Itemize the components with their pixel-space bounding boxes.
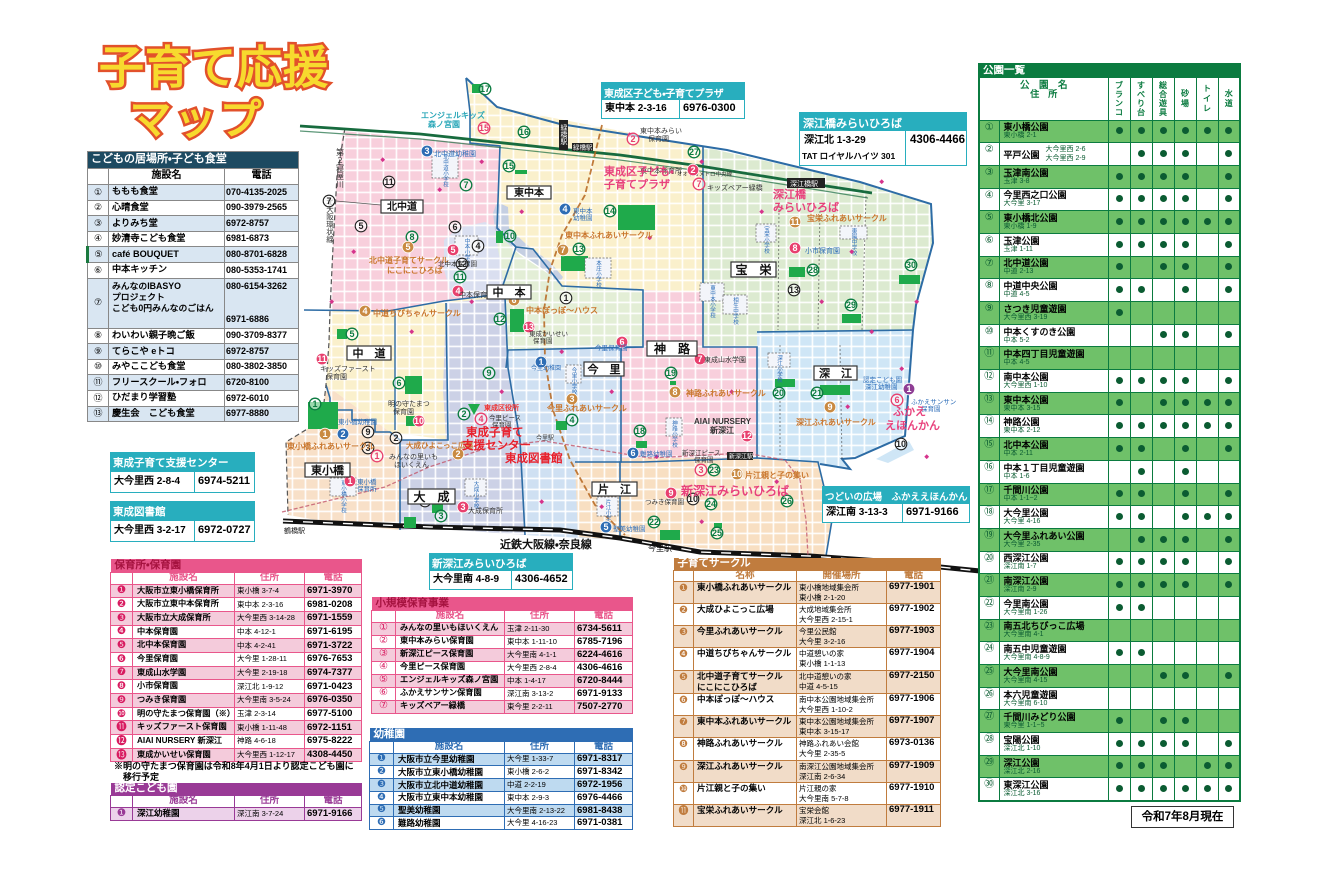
svg-text:東成図書館: 東成図書館 bbox=[505, 451, 563, 465]
svg-text:東成山水学園: 東成山水学園 bbox=[704, 355, 746, 364]
svg-text:28: 28 bbox=[808, 265, 818, 275]
svg-text:東成かいせい: 東成かいせい bbox=[529, 329, 568, 338]
svg-text:北中道: 北中道 bbox=[387, 200, 418, 213]
svg-text:東成区役所: 東成区役所 bbox=[484, 403, 519, 412]
svg-text:東成子育て: 東成子育て bbox=[466, 425, 524, 439]
svg-text:保育園: 保育園 bbox=[648, 134, 669, 143]
svg-text:大 成: 大 成 bbox=[413, 489, 449, 504]
svg-text:1: 1 bbox=[374, 451, 379, 461]
svg-text:6: 6 bbox=[452, 222, 457, 232]
svg-text:10: 10 bbox=[505, 231, 515, 241]
svg-text:片江親と子の集い: 片江親と子の集い bbox=[745, 470, 809, 480]
svg-text:みんなの里いも: みんなの里いも bbox=[389, 453, 438, 461]
svg-text:片 江: 片 江 bbox=[598, 482, 631, 496]
svg-text:22: 22 bbox=[649, 517, 659, 527]
svg-text:6: 6 bbox=[894, 395, 899, 405]
svg-text:13: 13 bbox=[789, 285, 799, 295]
svg-text:宝 栄: 宝 栄 bbox=[735, 262, 772, 277]
svg-text:東成区子ども・: 東成区子ども・ bbox=[604, 164, 674, 178]
svg-text:29: 29 bbox=[846, 300, 856, 310]
svg-text:4: 4 bbox=[475, 241, 480, 251]
svg-text:中 道: 中 道 bbox=[353, 346, 386, 360]
svg-text:第２寝屋川: 第２寝屋川 bbox=[336, 147, 345, 188]
svg-text:相生中学校: 相生中学校 bbox=[732, 296, 739, 326]
svg-text:11: 11 bbox=[384, 177, 394, 187]
svg-text:東小橋: 東小橋 bbox=[357, 477, 377, 486]
svg-text:7: 7 bbox=[560, 245, 565, 255]
svg-text:8: 8 bbox=[672, 387, 677, 397]
svg-text:30: 30 bbox=[906, 260, 916, 270]
svg-text:4: 4 bbox=[562, 204, 567, 214]
svg-text:東中本: 東中本 bbox=[573, 206, 593, 215]
svg-text:みらいひろば: みらいひろば bbox=[773, 200, 839, 214]
svg-text:今里駅: 今里駅 bbox=[536, 434, 554, 442]
svg-text:今里幼稚園: 今里幼稚園 bbox=[531, 364, 561, 372]
svg-text:大成小学校: 大成小学校 bbox=[473, 480, 480, 510]
svg-text:宝栄小学校: 宝栄小学校 bbox=[763, 225, 770, 255]
svg-text:2: 2 bbox=[393, 433, 398, 443]
svg-text:5: 5 bbox=[405, 242, 410, 252]
svg-text:7: 7 bbox=[697, 354, 702, 364]
svg-text:緑橋駅: 緑橋駅 bbox=[560, 123, 568, 146]
svg-text:4: 4 bbox=[362, 306, 367, 316]
svg-text:子育てプラザ: 子育てプラザ bbox=[604, 177, 670, 191]
svg-text:今 里: 今 里 bbox=[588, 362, 621, 376]
svg-text:8: 8 bbox=[409, 232, 414, 242]
svg-text:東小橋: 東小橋 bbox=[311, 463, 345, 477]
svg-text:保育園: 保育園 bbox=[694, 455, 714, 464]
svg-text:東中本ふれあいサークル: 東中本ふれあいサークル bbox=[565, 230, 653, 240]
svg-text:新深江ピース: 新深江ピース bbox=[682, 448, 721, 457]
svg-text:4: 4 bbox=[478, 414, 483, 424]
svg-text:深江橋: 深江橋 bbox=[773, 187, 807, 201]
svg-text:11: 11 bbox=[790, 217, 800, 227]
svg-text:今里駅: 今里駅 bbox=[648, 543, 672, 553]
svg-text:キッズファースト: キッズファースト bbox=[320, 364, 376, 373]
svg-text:2: 2 bbox=[461, 409, 466, 419]
svg-text:9: 9 bbox=[365, 427, 370, 437]
svg-text:9: 9 bbox=[486, 368, 491, 378]
svg-text:オオサカメトロ中央線: オオサカメトロ中央線 bbox=[677, 170, 733, 178]
svg-text:近鉄大阪線・奈良線: 近鉄大阪線・奈良線 bbox=[500, 537, 593, 551]
svg-text:キッズベアー緑橋: キッズベアー緑橋 bbox=[707, 183, 763, 192]
svg-text:3: 3 bbox=[569, 394, 574, 404]
svg-text:11: 11 bbox=[455, 272, 465, 282]
svg-text:15: 15 bbox=[479, 123, 489, 133]
svg-text:1: 1 bbox=[322, 429, 327, 439]
svg-text:ふかえ: ふかえ bbox=[893, 405, 926, 418]
svg-text:1: 1 bbox=[312, 399, 317, 409]
svg-text:中道ちびちゃんサークル: 中道ちびちゃんサークル bbox=[373, 308, 461, 318]
svg-text:にこにこひろば: にこにこひろば bbox=[387, 265, 443, 275]
svg-text:2: 2 bbox=[455, 449, 460, 459]
svg-text:1: 1 bbox=[906, 384, 911, 394]
svg-text:新深江駅: 新深江駅 bbox=[729, 453, 753, 461]
svg-text:25: 25 bbox=[712, 528, 722, 538]
svg-text:21: 21 bbox=[812, 388, 822, 398]
svg-text:森ノ宮園: 森ノ宮園 bbox=[428, 119, 460, 129]
svg-text:16: 16 bbox=[519, 127, 529, 137]
svg-text:東小橋幼稚園: 東小橋幼稚園 bbox=[338, 417, 377, 426]
svg-text:3: 3 bbox=[698, 465, 703, 475]
svg-text:幼稚園: 幼稚園 bbox=[573, 213, 593, 222]
svg-text:9: 9 bbox=[668, 488, 673, 498]
svg-text:保育園: 保育園 bbox=[326, 372, 347, 381]
svg-text:12: 12 bbox=[742, 431, 752, 441]
svg-text:東中本: 東中本 bbox=[514, 186, 545, 199]
svg-text:27: 27 bbox=[689, 147, 699, 157]
svg-text:5: 5 bbox=[349, 329, 354, 339]
svg-text:7: 7 bbox=[696, 179, 701, 189]
svg-text:23: 23 bbox=[709, 465, 719, 475]
svg-text:北中道小学校: 北中道小学校 bbox=[442, 153, 449, 189]
svg-text:子育て応援: 子育て応援 bbox=[99, 42, 329, 93]
svg-text:支援センター: 支援センター bbox=[461, 438, 531, 452]
svg-text:6: 6 bbox=[396, 378, 401, 388]
svg-text:保育園: 保育園 bbox=[533, 336, 553, 345]
svg-text:明の守たまつ: 明の守たまつ bbox=[388, 399, 430, 408]
svg-text:北中道子育てサークル: 北中道子育てサークル bbox=[369, 255, 449, 265]
svg-text:2: 2 bbox=[690, 165, 695, 175]
svg-text:4: 4 bbox=[569, 415, 574, 425]
svg-text:10: 10 bbox=[732, 469, 742, 479]
svg-text:今里保育園: 今里保育園 bbox=[595, 343, 628, 352]
svg-text:神路ふれあいサークル: 神路ふれあいサークル bbox=[685, 388, 766, 398]
svg-text:新深江みらいひろば: 新深江みらいひろば bbox=[680, 483, 789, 498]
svg-text:1: 1 bbox=[563, 293, 568, 303]
svg-text:5: 5 bbox=[450, 245, 455, 255]
svg-text:東中本みらい: 東中本みらい bbox=[640, 126, 682, 135]
svg-text:深江小学校: 深江小学校 bbox=[776, 354, 783, 384]
svg-text:18: 18 bbox=[635, 426, 645, 436]
svg-text:7: 7 bbox=[463, 180, 468, 190]
svg-text:新深江: 新深江 bbox=[709, 425, 734, 435]
svg-text:難路幼稚園: 難路幼稚園 bbox=[640, 449, 673, 458]
svg-text:つみき保育園: つみき保育園 bbox=[645, 497, 684, 506]
svg-text:保育園: 保育園 bbox=[393, 407, 414, 416]
svg-text:緑橋駅: 緑橋駅 bbox=[573, 143, 593, 152]
svg-text:宝栄ふれあいサークル: 宝栄ふれあいサークル bbox=[807, 213, 887, 223]
svg-text:7: 7 bbox=[326, 196, 331, 206]
svg-text:東小橋ふれあいサークル: 東小橋ふれあいサークル bbox=[287, 441, 375, 451]
svg-text:深江幼稚園: 深江幼稚園 bbox=[865, 382, 898, 391]
svg-text:2: 2 bbox=[340, 429, 345, 439]
svg-text:24: 24 bbox=[706, 499, 716, 509]
svg-text:今里小学校: 今里小学校 bbox=[571, 366, 578, 396]
svg-text:5: 5 bbox=[603, 522, 608, 532]
svg-text:2: 2 bbox=[630, 134, 635, 144]
svg-text:神 路: 神 路 bbox=[653, 341, 691, 356]
svg-text:中本ぽっぽ～ハウス: 中本ぽっぽ～ハウス bbox=[526, 305, 598, 315]
svg-text:5: 5 bbox=[358, 221, 363, 231]
svg-text:認定こども園: 認定こども園 bbox=[863, 376, 902, 384]
svg-text:本庄小学校: 本庄小学校 bbox=[595, 259, 602, 289]
svg-text:北中道幼稚園: 北中道幼稚園 bbox=[434, 149, 476, 158]
svg-text:神路小学校: 神路小学校 bbox=[671, 419, 678, 449]
svg-text:マップ: マップ bbox=[129, 96, 264, 143]
svg-text:10: 10 bbox=[414, 416, 424, 426]
svg-text:8: 8 bbox=[792, 243, 797, 253]
svg-text:19: 19 bbox=[666, 368, 676, 378]
svg-text:保育所: 保育所 bbox=[357, 484, 377, 493]
svg-text:東中本小学校: 東中本小学校 bbox=[709, 284, 716, 320]
svg-text:11: 11 bbox=[317, 354, 327, 364]
svg-text:10: 10 bbox=[896, 439, 906, 449]
svg-text:今里ピース: 今里ピース bbox=[489, 413, 521, 422]
svg-text:12: 12 bbox=[495, 314, 505, 324]
svg-text:小市保育園: 小市保育園 bbox=[805, 246, 840, 255]
svg-text:1: 1 bbox=[347, 476, 352, 486]
svg-text:深 江: 深 江 bbox=[819, 366, 852, 380]
svg-text:深江橋駅: 深江橋駅 bbox=[790, 179, 818, 188]
svg-text:ふかえサンサン: ふかえサンサン bbox=[911, 398, 956, 406]
svg-text:13: 13 bbox=[574, 244, 584, 254]
svg-text:9: 9 bbox=[827, 402, 832, 412]
svg-text:AIAI NURSERY: AIAI NURSERY bbox=[694, 417, 752, 426]
svg-text:聖美幼稚園: 聖美幼稚園 bbox=[613, 524, 646, 533]
svg-text:15: 15 bbox=[504, 161, 514, 171]
svg-text:20: 20 bbox=[774, 388, 784, 398]
svg-text:鶴橋駅: 鶴橋駅 bbox=[284, 526, 305, 535]
svg-text:14: 14 bbox=[605, 206, 615, 216]
svg-text:大成保育所: 大成保育所 bbox=[468, 506, 503, 515]
svg-text:3: 3 bbox=[438, 511, 443, 521]
svg-text:3: 3 bbox=[460, 502, 465, 512]
svg-text:エンジェルキッズ: エンジェルキッズ bbox=[421, 110, 485, 120]
svg-text:ほいくえん: ほいくえん bbox=[394, 461, 429, 469]
svg-text:中 本: 中 本 bbox=[493, 285, 527, 299]
svg-text:6: 6 bbox=[630, 448, 635, 458]
svg-text:深江ふれあいサークル: 深江ふれあいサークル bbox=[796, 417, 876, 427]
svg-text:3: 3 bbox=[424, 146, 429, 156]
svg-text:えほんかん: えほんかん bbox=[885, 419, 940, 432]
svg-text:今里ふれあいサークル: 今里ふれあいサークル bbox=[546, 403, 627, 413]
svg-text:17: 17 bbox=[480, 84, 490, 94]
svg-text:北中本保育園: 北中本保育園 bbox=[438, 259, 477, 268]
